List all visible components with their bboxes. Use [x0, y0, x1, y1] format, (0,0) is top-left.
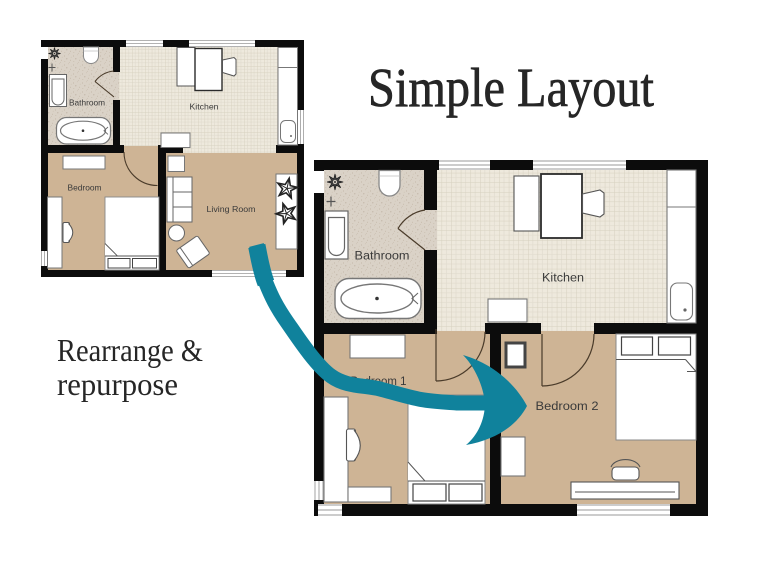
svg-text:Living Room: Living Room	[207, 205, 256, 214]
svg-text:Rearrange &: Rearrange &	[57, 332, 203, 368]
svg-text:repurpose: repurpose	[57, 366, 178, 402]
svg-text:Bathroom: Bathroom	[355, 251, 410, 263]
svg-text:Bathroom: Bathroom	[69, 99, 105, 108]
svg-text:Kitchen: Kitchen	[542, 273, 584, 285]
svg-text:Bedroom: Bedroom	[68, 184, 102, 193]
svg-text:Bedroom 2: Bedroom 2	[536, 401, 599, 413]
svg-text:Kitchen: Kitchen	[190, 103, 219, 112]
svg-text:Simple Layout: Simple Layout	[368, 57, 654, 118]
